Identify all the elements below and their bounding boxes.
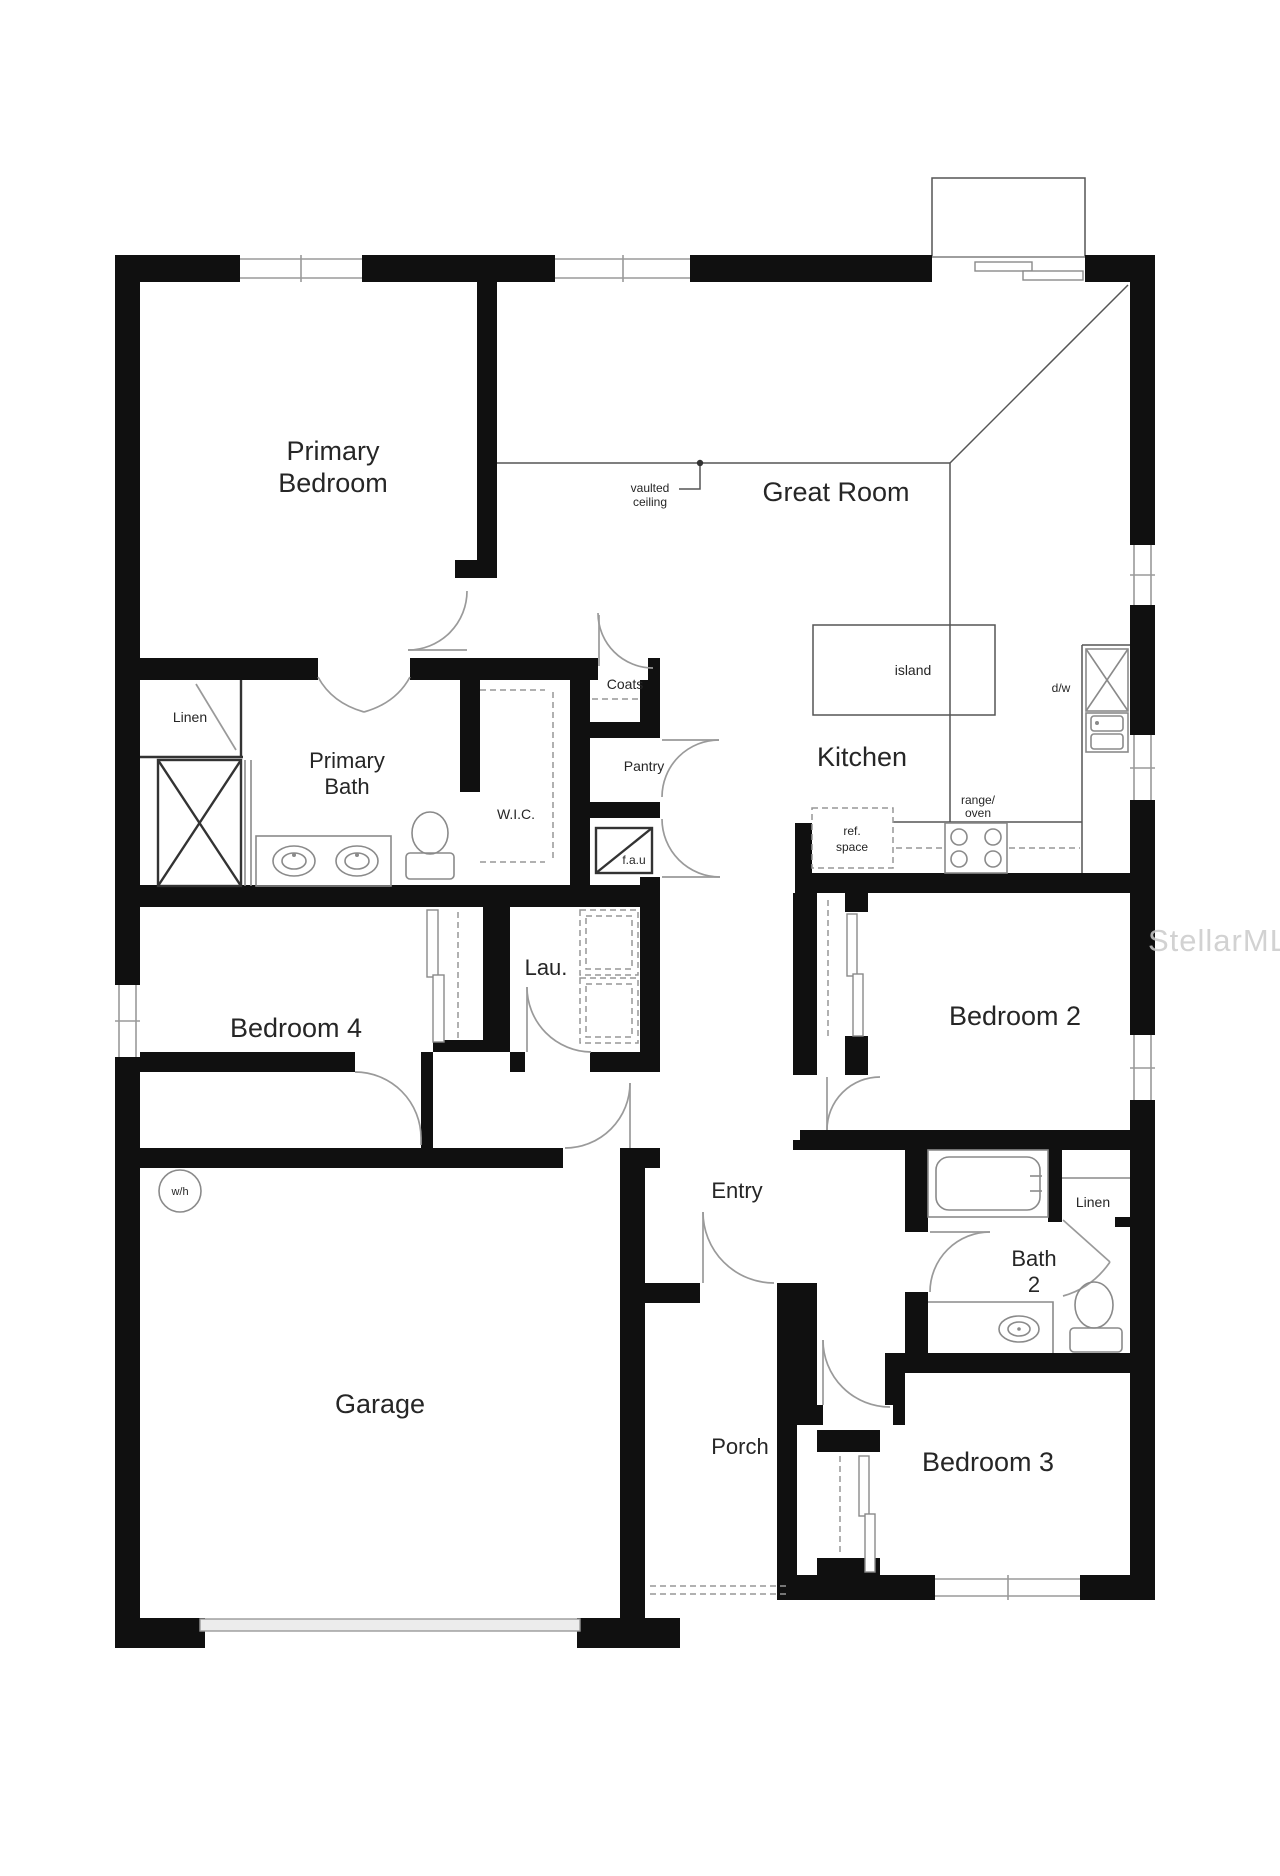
wic-closet-rods bbox=[480, 690, 553, 862]
label-fau: f.a.u bbox=[622, 853, 645, 867]
label-bedroom2: Bedroom 2 bbox=[949, 1001, 1081, 1031]
label-range-oven-2: oven bbox=[965, 806, 991, 820]
label-primary-bath-1: Primary bbox=[309, 748, 385, 773]
floor-plan-page: Primary Bedroom Great Room vaulted ceili… bbox=[0, 0, 1280, 1876]
label-ref-space-2: space bbox=[836, 840, 868, 854]
washer-dryer bbox=[580, 910, 638, 1043]
window-great-room-top bbox=[555, 255, 690, 282]
label-entry: Entry bbox=[711, 1178, 762, 1203]
range-burners bbox=[945, 823, 1007, 873]
bedroom2-closet bbox=[828, 900, 863, 1036]
toilet-primary bbox=[406, 812, 454, 879]
kitchen-sink bbox=[1086, 713, 1128, 752]
vanity-double-sink bbox=[256, 836, 391, 886]
door-bedroom3 bbox=[823, 1340, 890, 1407]
double-door-primary-bath bbox=[318, 677, 410, 712]
label-range-oven-1: range/ bbox=[961, 793, 996, 807]
vaulted-ceiling-leader bbox=[679, 466, 700, 489]
bedroom3-closet bbox=[840, 1456, 875, 1572]
label-wic: W.I.C. bbox=[497, 806, 535, 822]
sliding-door-great-room bbox=[932, 257, 1085, 280]
label-vaulted-ceiling-1: vaulted bbox=[631, 481, 670, 495]
door-front-entry bbox=[703, 1212, 774, 1283]
door-laundry bbox=[527, 987, 591, 1052]
window-bedroom3 bbox=[935, 1575, 1080, 1600]
kitchen-counter-bottom bbox=[893, 822, 1082, 848]
door-coats bbox=[598, 613, 653, 668]
label-bath2-1: Bath bbox=[1011, 1246, 1056, 1271]
corner-ceiling-diagonal bbox=[950, 285, 1128, 463]
window-primary-bedroom-top bbox=[240, 255, 362, 282]
bedroom4-closet bbox=[427, 910, 458, 1042]
label-bath2-2: 2 bbox=[1028, 1272, 1040, 1297]
dishwasher-unit bbox=[1086, 649, 1128, 711]
label-bedroom3: Bedroom 3 bbox=[922, 1447, 1054, 1477]
door-pantry bbox=[662, 740, 719, 797]
door-garage bbox=[565, 1083, 630, 1148]
walls bbox=[115, 255, 1155, 1648]
window-kitchen-right-2 bbox=[1130, 735, 1155, 800]
window-kitchen-right-1 bbox=[1130, 545, 1155, 605]
door-fau bbox=[662, 819, 720, 877]
label-bedroom4: Bedroom 4 bbox=[230, 1013, 362, 1043]
floor-plan: Primary Bedroom Great Room vaulted ceili… bbox=[0, 0, 1280, 1876]
label-coats: Coats bbox=[607, 676, 644, 692]
vanity-bath2 bbox=[928, 1302, 1053, 1353]
label-primary-bath-2: Bath bbox=[324, 774, 369, 799]
label-linen-bath2: Linen bbox=[1076, 1194, 1110, 1210]
label-primary-bedroom-2: Bedroom bbox=[278, 468, 388, 498]
door-bath2 bbox=[930, 1232, 990, 1292]
label-vaulted-ceiling-2: ceiling bbox=[633, 495, 667, 509]
label-ref-space-1: ref. bbox=[843, 824, 860, 838]
door-primary-bedroom bbox=[408, 591, 467, 650]
window-bedroom2 bbox=[1130, 1035, 1155, 1100]
door-bedroom2 bbox=[827, 1077, 880, 1130]
label-dishwasher: d/w bbox=[1052, 681, 1071, 695]
shower bbox=[158, 760, 251, 886]
label-linen-primary: Linen bbox=[173, 709, 207, 725]
watermark: StellarMLS bbox=[1148, 923, 1280, 958]
ref-space-box bbox=[812, 808, 893, 868]
garage-door bbox=[200, 1619, 580, 1631]
label-water-heater: w/h bbox=[170, 1186, 188, 1198]
door-bedroom4 bbox=[355, 1072, 421, 1145]
label-island: island bbox=[895, 662, 932, 678]
label-primary-bedroom-1: Primary bbox=[287, 436, 380, 466]
vaulted-ceiling-dot bbox=[697, 460, 703, 466]
label-pantry: Pantry bbox=[624, 758, 664, 774]
label-garage: Garage bbox=[335, 1389, 425, 1419]
label-great-room: Great Room bbox=[762, 477, 909, 507]
window-bedroom4 bbox=[115, 985, 140, 1057]
porch-edge bbox=[650, 1586, 790, 1594]
toilet-bath2 bbox=[1070, 1282, 1122, 1352]
label-porch: Porch bbox=[711, 1434, 768, 1459]
bathtub bbox=[928, 1150, 1048, 1217]
label-laundry: Lau. bbox=[525, 955, 568, 980]
patio-outline bbox=[932, 178, 1085, 257]
label-kitchen: Kitchen bbox=[817, 742, 907, 772]
